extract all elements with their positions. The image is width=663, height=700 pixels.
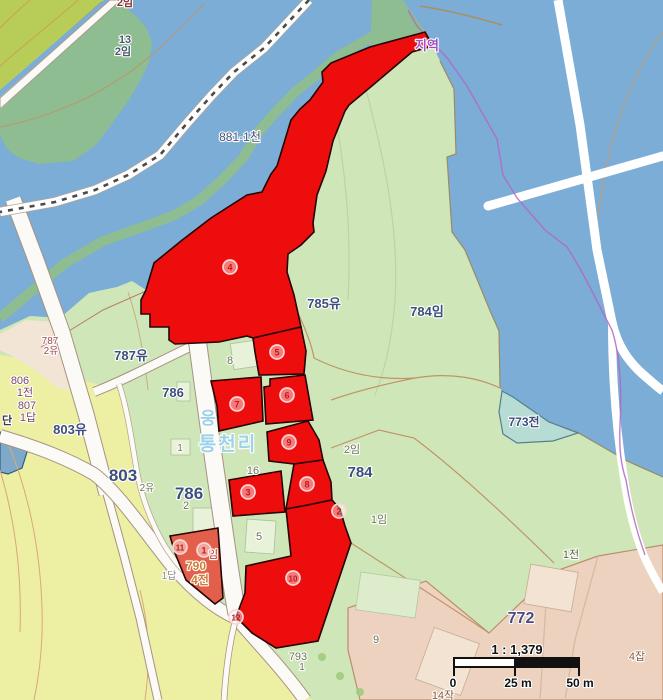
svg-text:14작: 14작 [432,689,454,700]
svg-text:11: 11 [176,544,185,553]
svg-text:2임: 2임 [115,45,131,58]
svg-text:8: 8 [227,355,233,367]
svg-text:지역: 지역 [415,38,439,53]
svg-text:2임: 2임 [117,0,133,9]
svg-text:785유: 785유 [307,296,341,311]
svg-text:1: 1 [201,546,206,556]
svg-text:13: 13 [119,34,131,46]
svg-text:단: 단 [2,413,12,427]
svg-text:25 m: 25 m [504,676,531,690]
svg-text:5: 5 [256,531,262,543]
svg-text:1: 1 [177,443,183,454]
svg-text:1답: 1답 [20,411,36,424]
svg-text:8: 8 [304,480,309,490]
svg-text:786: 786 [162,385,184,400]
svg-text:803: 803 [109,466,137,485]
svg-text:웅: 웅 [200,409,216,428]
svg-text:10: 10 [289,575,298,584]
svg-text:773전: 773전 [508,414,539,429]
svg-text:787유: 787유 [114,348,148,363]
svg-text:806: 806 [11,375,29,387]
svg-text:1답: 1답 [162,570,177,582]
svg-text:2유: 2유 [140,482,155,494]
svg-text:4잡: 4잡 [629,650,645,663]
svg-text:50 m: 50 m [566,676,593,690]
svg-text:784임: 784임 [410,304,444,319]
svg-text:16: 16 [247,465,259,477]
svg-text:9: 9 [373,634,379,646]
svg-text:881-1천: 881-1천 [219,129,261,144]
svg-text:3: 3 [245,488,250,498]
svg-text:1임: 1임 [371,513,387,526]
svg-text:2: 2 [183,500,189,512]
svg-text:12: 12 [232,614,241,623]
svg-text:772: 772 [508,610,535,627]
svg-text:4전: 4전 [191,572,209,587]
svg-text:803유: 803유 [53,422,87,437]
svg-text:통천리: 통천리 [199,433,257,455]
svg-text:2임: 2임 [344,443,360,456]
svg-text:7: 7 [234,400,239,410]
svg-text:790: 790 [186,559,206,573]
svg-text:2: 2 [336,507,341,517]
svg-text:1 : 1,379: 1 : 1,379 [491,642,542,657]
svg-text:4: 4 [227,263,232,273]
svg-text:5: 5 [274,348,279,358]
svg-text:1전: 1전 [17,386,33,399]
svg-text:0: 0 [450,676,457,690]
svg-text:807: 807 [18,400,36,412]
svg-text:1전: 1전 [563,548,579,561]
svg-text:784: 784 [347,464,373,481]
svg-text:6: 6 [284,391,289,401]
svg-text:9: 9 [286,438,291,448]
svg-text:1: 1 [299,662,305,673]
svg-text:2유: 2유 [44,345,59,357]
